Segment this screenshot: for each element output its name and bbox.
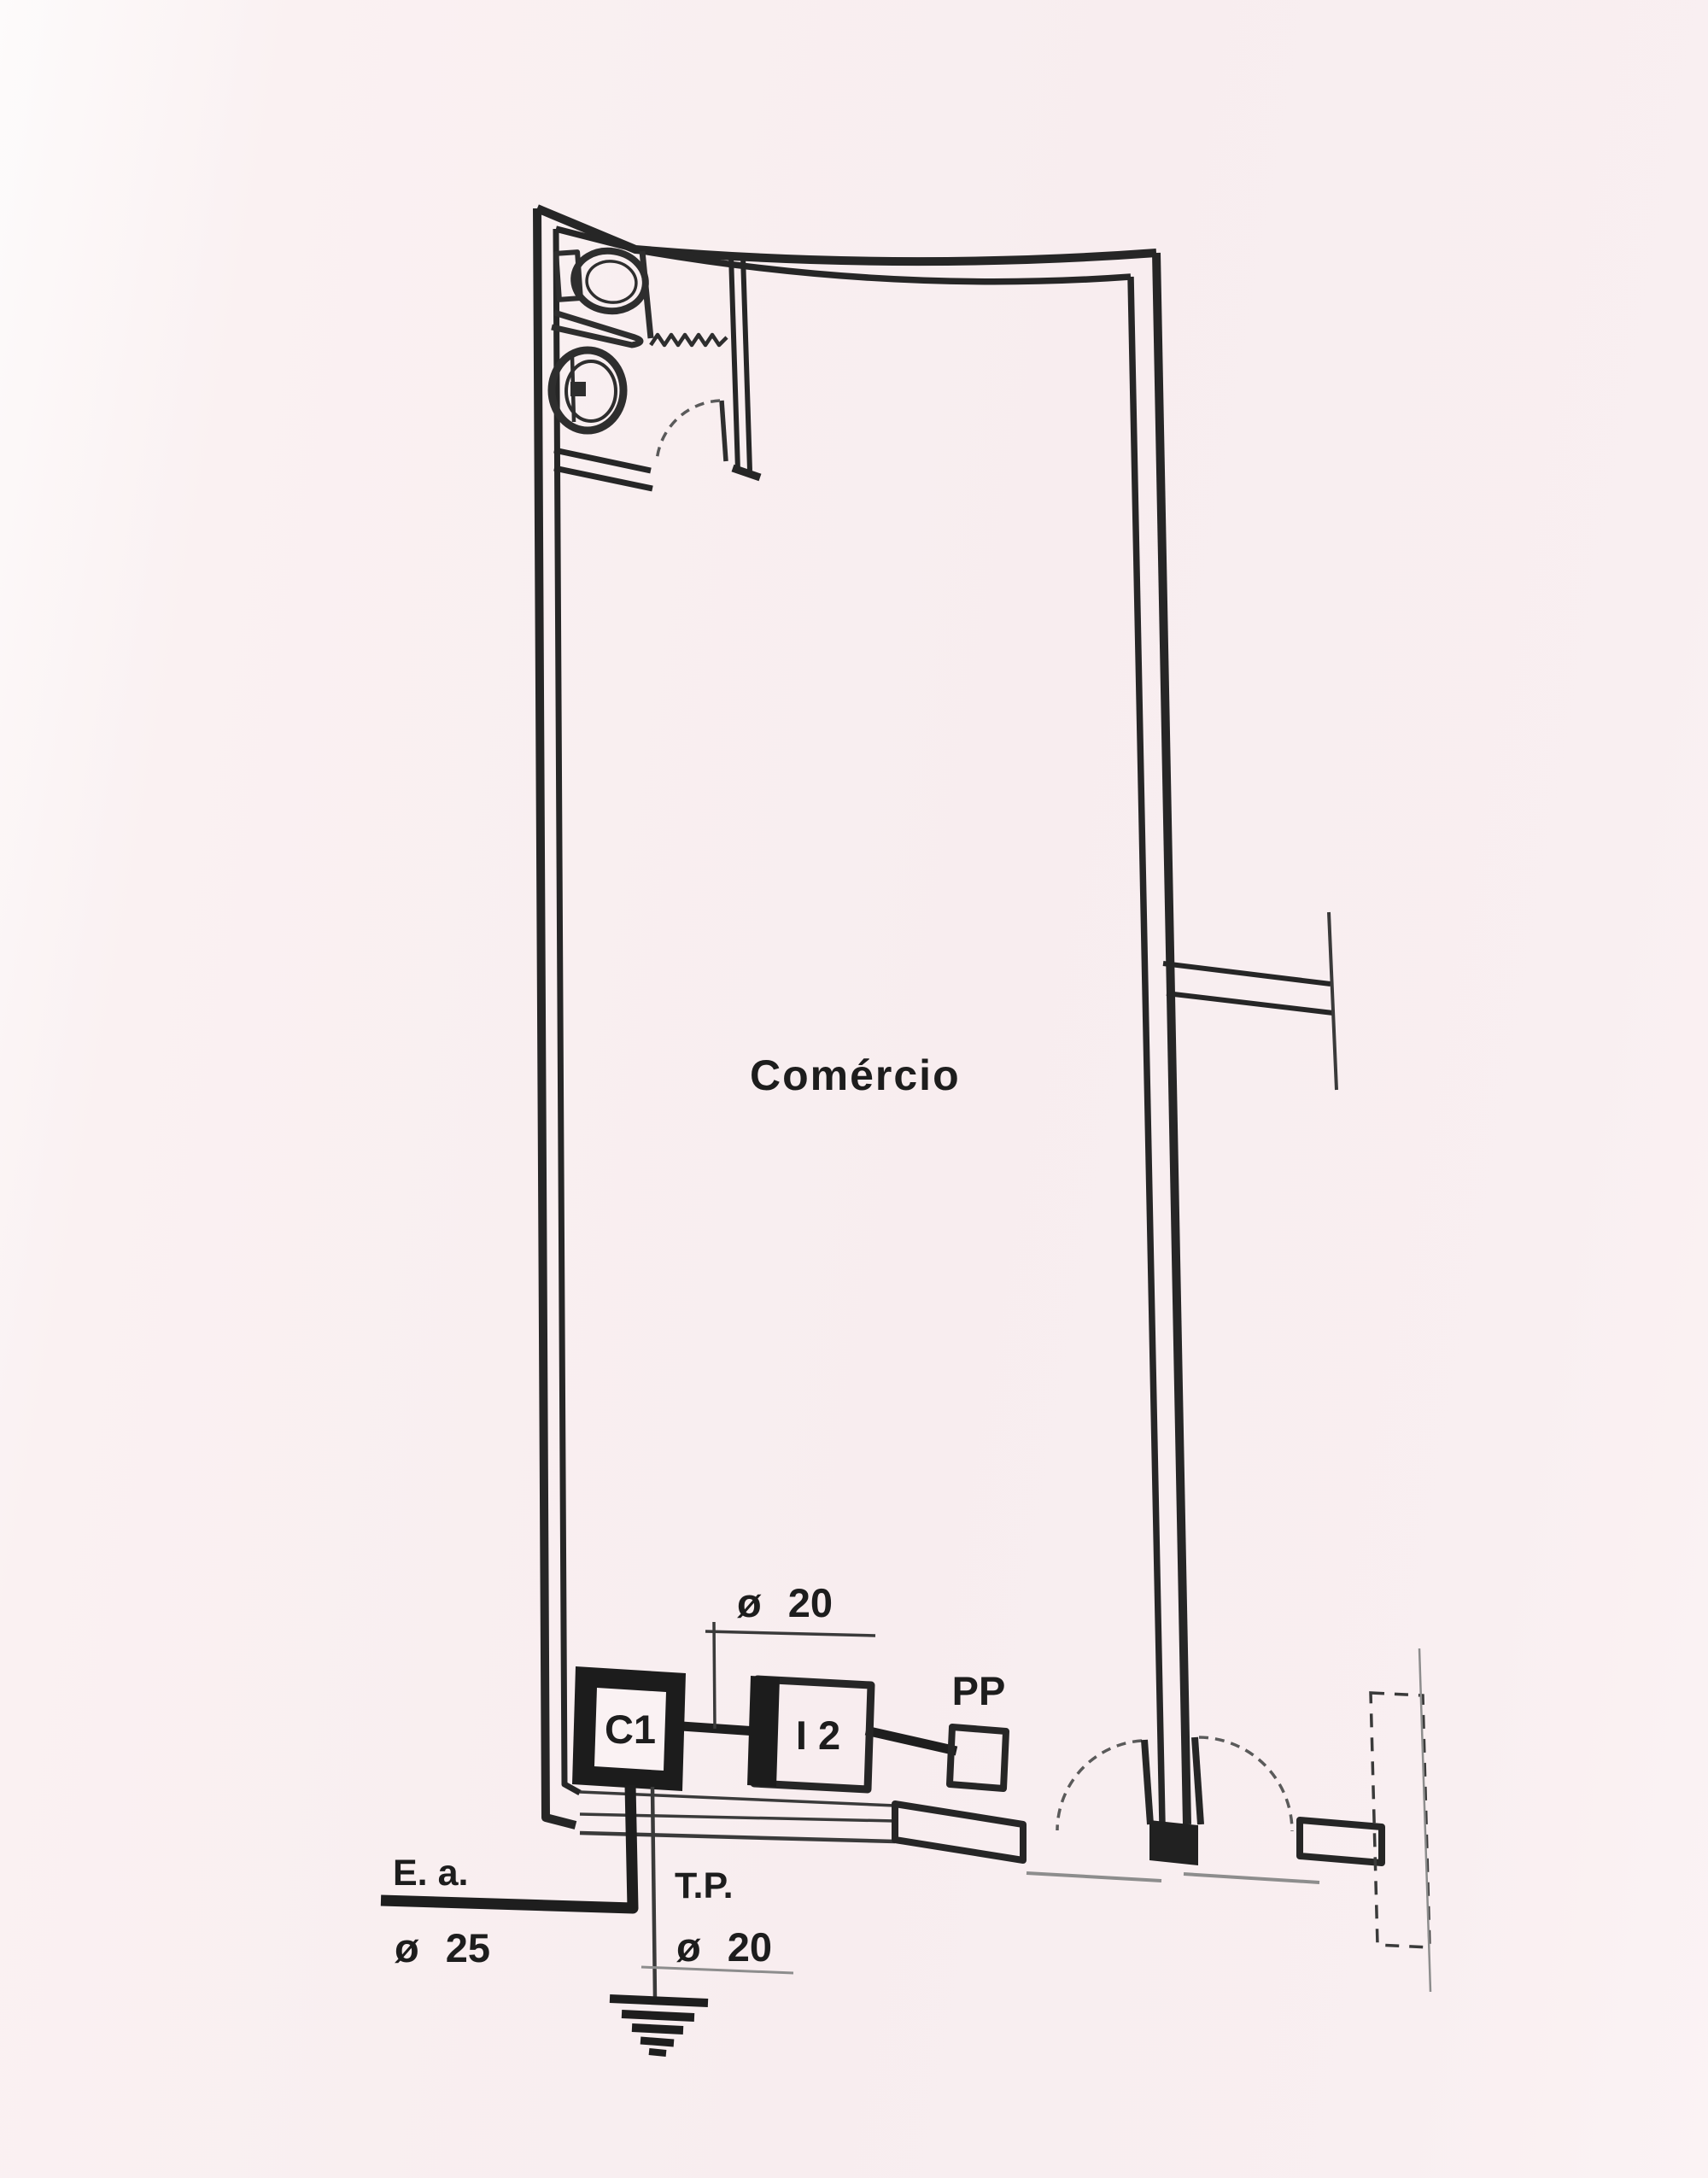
wire-i2-pp [866, 1730, 956, 1751]
shower-zigzag [651, 335, 727, 345]
dashed-column [1371, 1693, 1430, 1947]
bathroom-east-wall-foot [733, 468, 760, 477]
branch-wall-upper [1163, 963, 1331, 984]
dim-leader-line [705, 1631, 875, 1636]
ground-bar-2 [622, 2014, 694, 2017]
door-left-arc [1057, 1741, 1142, 1830]
door-right-threshold [1184, 1874, 1319, 1882]
i2-left-bar [747, 1676, 780, 1787]
ea-diameter-label: ø 25 [395, 1925, 490, 1970]
window-sill-left [895, 1804, 1023, 1860]
ground-bar-5 [649, 2052, 666, 2053]
i2-label: I 2 [796, 1713, 840, 1758]
scanned-floor-plan-sheet: Comércio ø 20 C1 I 2 PP E. a. ø 25 T.P. … [0, 0, 1708, 2178]
ground-bar-3 [632, 2028, 683, 2030]
pp-box [950, 1727, 1006, 1789]
bathroom-south-wall-inner [554, 468, 652, 489]
c1-label: C1 [605, 1707, 656, 1752]
door-left-leaf [1144, 1740, 1150, 1824]
branch-wall-lower [1167, 993, 1333, 1013]
door-right-leaf [1195, 1737, 1201, 1824]
ground-bar-4 [640, 2040, 674, 2043]
bathroom [552, 246, 760, 489]
bathroom-south-wall-outer [554, 450, 651, 471]
tp-diameter-label: ø 20 [676, 1924, 772, 1970]
ea-label: E. a. [393, 1853, 468, 1894]
dim-extension-line [714, 1622, 715, 1729]
tp-label: T.P. [675, 1865, 734, 1906]
wire-c1-i2 [681, 1726, 757, 1731]
ground-bar-1 [610, 1999, 708, 2003]
toilet-flush-detail [570, 382, 586, 396]
floor-plan-svg: Comércio ø 20 C1 I 2 PP E. a. ø 25 T.P. … [0, 0, 1708, 2178]
sink-toilet-partition [552, 313, 640, 345]
labels: Comércio ø 20 C1 I 2 PP E. a. ø 25 T.P. … [393, 1051, 1005, 1970]
window-sill-right [1300, 1820, 1382, 1863]
bathroom-east-wall-b [743, 256, 750, 471]
room-label: Comércio [750, 1051, 961, 1099]
left-wall-inner [556, 229, 580, 1793]
branch-wall [1163, 912, 1337, 1090]
ground-symbol [610, 1999, 708, 2053]
bathroom-door-leaf [722, 401, 726, 461]
door-right-arc [1199, 1737, 1292, 1831]
sink-basin-inner [584, 258, 640, 306]
pp-label: PP [952, 1668, 1006, 1713]
building-outline [537, 208, 1187, 1825]
boundary-faint-line [1419, 1648, 1430, 1992]
right-wall-outer [1156, 253, 1187, 1824]
bathroom-door-arc [657, 401, 720, 461]
center-door-post [1149, 1820, 1198, 1865]
circuit-dimension-label: ø 20 [737, 1580, 833, 1625]
branch-wall-endcap [1329, 912, 1337, 1090]
door-left-threshold [1027, 1873, 1161, 1881]
bathroom-east-wall-a [731, 255, 738, 471]
